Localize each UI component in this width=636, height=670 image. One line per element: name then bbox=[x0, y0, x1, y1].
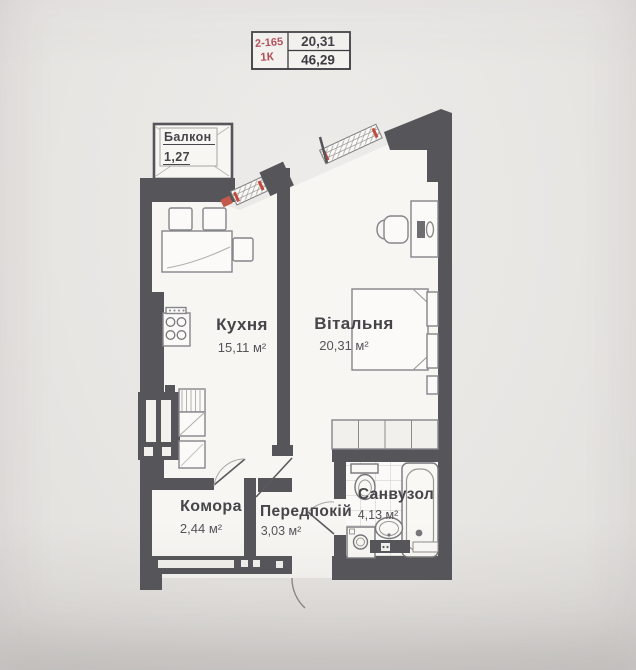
shaft-notch bbox=[165, 385, 175, 393]
bathroom-left-wall-lower bbox=[334, 535, 346, 560]
wall-box bbox=[253, 560, 260, 567]
dining-chair bbox=[169, 208, 192, 230]
bottom-wall-niche bbox=[158, 560, 234, 568]
dining-table bbox=[162, 231, 232, 272]
storage-right-wall bbox=[244, 478, 256, 560]
dining-chair bbox=[233, 238, 253, 261]
entrance-door-arc bbox=[292, 578, 305, 608]
living-room-area: 20,31 м² bbox=[319, 338, 369, 353]
kitchen-living-partition bbox=[277, 168, 290, 452]
floorplan-photo: Балкон 1,27 Кухня 15,11 м² Вітальня 20,3… bbox=[0, 0, 636, 670]
shaft-box bbox=[162, 447, 171, 456]
right-wall-niche bbox=[428, 182, 438, 201]
dining-chair bbox=[203, 208, 226, 230]
bathtub-drain bbox=[416, 530, 423, 537]
bathroom-label: Санвузол bbox=[358, 486, 434, 503]
wall-box bbox=[276, 561, 283, 568]
storage-area: 2,44 м² bbox=[180, 521, 223, 536]
unit-type: 1К bbox=[260, 51, 275, 64]
area-total-value: 46,29 bbox=[301, 53, 335, 68]
bathroom-top-wall bbox=[332, 449, 438, 462]
balcony-area: 1,27 bbox=[164, 150, 190, 164]
bathroom-area: 4,13 м² bbox=[358, 508, 399, 522]
kitchen-label: Кухня bbox=[216, 315, 268, 334]
right-wall bbox=[438, 150, 452, 580]
hallway-area: 3,03 м² bbox=[261, 524, 302, 538]
wall-box bbox=[241, 560, 248, 567]
unit-info-table: 2-165 1К 20,31 46,29 bbox=[252, 32, 350, 69]
bathroom-left-wall-upper bbox=[334, 449, 346, 499]
kitchen-area: 15,11 м² bbox=[218, 340, 267, 355]
left-wall bbox=[140, 178, 152, 590]
shaft-slot bbox=[161, 400, 171, 442]
bed-pillow bbox=[427, 334, 438, 368]
partition-end-cap bbox=[272, 445, 293, 456]
shaft-box bbox=[144, 447, 153, 456]
monitor bbox=[417, 221, 425, 238]
stove bbox=[163, 313, 190, 346]
bottom-wall-right bbox=[332, 556, 452, 580]
bed-pillow bbox=[427, 292, 438, 326]
hallway-label: Передпокій bbox=[260, 503, 352, 520]
shaft-notch bbox=[141, 385, 151, 393]
bath-shelf bbox=[413, 542, 438, 552]
floor-plan: Балкон 1,27 Кухня 15,11 м² Вітальня 20,3… bbox=[0, 0, 636, 670]
balcony-label: Балкон bbox=[164, 130, 212, 144]
balcony-bottom-wall bbox=[140, 178, 235, 202]
desk-chair bbox=[384, 216, 408, 243]
living-room-label: Вітальня bbox=[314, 314, 393, 333]
toilet-tank bbox=[351, 464, 378, 473]
storage-label: Комора bbox=[180, 498, 242, 515]
nightstand bbox=[427, 376, 438, 394]
storage-top-wall bbox=[152, 478, 214, 490]
area-living-value: 20,31 bbox=[301, 34, 335, 49]
unit-id: 2-165 bbox=[255, 36, 284, 50]
shaft-slot bbox=[146, 400, 156, 442]
